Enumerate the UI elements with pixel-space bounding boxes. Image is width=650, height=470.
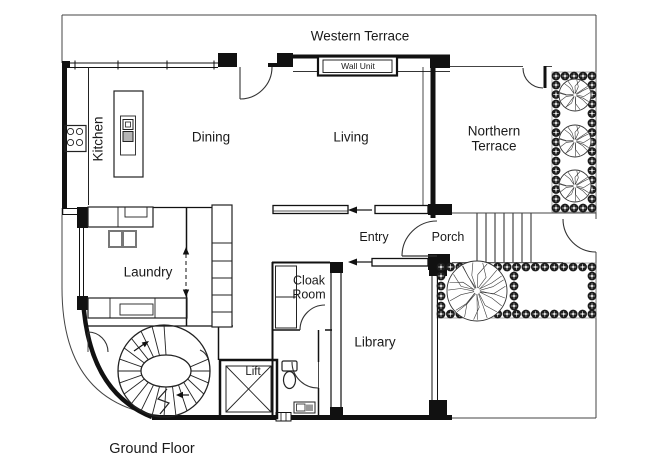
label-porch: Porch: [432, 230, 465, 244]
furniture: [65, 57, 397, 419]
label-ground-floor: Ground Floor: [109, 441, 194, 457]
stair-arrow-icon: [176, 392, 183, 398]
label-kitchen: Kitchen: [91, 116, 106, 161]
label-dining: Dining: [192, 130, 230, 145]
label-wall-unit: Wall Unit: [341, 61, 375, 71]
door-swings: [88, 67, 596, 388]
entry-arrow-icon: [348, 207, 357, 214]
label-library: Library: [354, 335, 395, 350]
label-living: Living: [333, 130, 368, 145]
label-laundry: Laundry: [124, 265, 173, 280]
wall-columns: [62, 53, 452, 418]
porch-steps: [477, 214, 531, 263]
toilet-icon: [282, 361, 297, 371]
washer-icon: [109, 231, 122, 247]
entry-arrow-icon: [348, 259, 357, 266]
trees: [447, 79, 591, 321]
floor-plan-drawing: [0, 0, 650, 470]
spiral-staircase: [118, 325, 210, 417]
label-entry: Entry: [359, 230, 388, 244]
label-northern-terrace: Northern Terrace: [458, 124, 530, 153]
dryer-icon: [123, 231, 136, 247]
floor-plan: Western Terrace Wall Unit Kitchen Dining…: [0, 0, 650, 470]
label-western-terrace: Western Terrace: [311, 29, 410, 44]
stair-break-mark: [158, 389, 169, 414]
sliding-door-arrow-icon: [183, 290, 189, 298]
label-lift: Lift: [245, 366, 260, 378]
label-cloak-room: Cloak Room: [285, 275, 333, 302]
shelving-unit: [212, 205, 232, 327]
sliding-door-arrow-icon: [183, 247, 189, 255]
